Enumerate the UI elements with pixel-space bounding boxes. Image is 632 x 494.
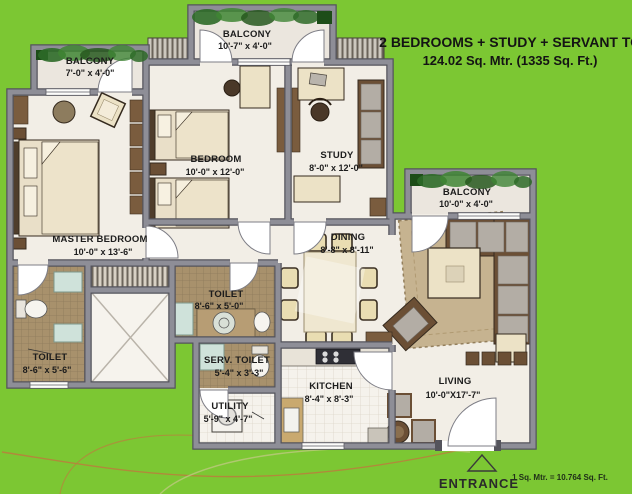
- master-bed: [10, 128, 99, 249]
- dims-utility: 5'-9" x 4'-7": [204, 414, 253, 424]
- study-laptop: [309, 73, 326, 86]
- bedroom-chair: [224, 80, 240, 96]
- dims-servant-toilet: 5'-4" x 3'-3": [215, 368, 264, 378]
- label-kitchen: KITCHEN: [309, 381, 353, 392]
- dims-study: 8'-0" x 12'-0": [309, 163, 363, 173]
- bedroom-desk: [240, 66, 270, 108]
- title-line1: 2 BEDROOMS + STUDY + SERVANT TOI.: [379, 34, 632, 50]
- entrance-label: ENTRANCE: [439, 476, 519, 491]
- label-toilet-mid: TOILET: [209, 289, 244, 300]
- study-cabinet: [370, 198, 386, 216]
- label-balcony-right: BALCONY: [443, 187, 492, 198]
- floor-plan-page: 2 BEDROOMS + STUDY + SERVANT TOI. 124.02…: [0, 0, 632, 494]
- master-round-table: [53, 101, 75, 123]
- dims-master-bedroom: 10'-0" x 13'-6": [74, 247, 133, 257]
- living-coffee-table: [428, 248, 480, 298]
- title-line2: 124.02 Sq. Mtr. (1335 Sq. Ft.): [423, 53, 598, 68]
- label-balcony-left: BALCONY: [66, 56, 115, 67]
- wardrobe-hatch: [90, 266, 170, 288]
- shaft: [91, 292, 170, 383]
- dims-toilet-left: 8'-6" x 5'-6": [23, 365, 72, 375]
- dims-balcony-left: 7'-0" x 4'-0": [66, 68, 115, 78]
- label-utility: UTILITY: [211, 401, 249, 412]
- label-master-bedroom: MASTER BEDROOM: [52, 234, 147, 245]
- dims-bedroom: 10'-0" x 12'-0": [186, 167, 245, 177]
- dims-balcony-right: 10'-0" x 4'-0": [439, 199, 493, 209]
- entrance-jamb-left: [435, 440, 442, 451]
- dims-living: 10'-0"X17'-7": [426, 390, 481, 400]
- dims-kitchen: 8'-4" x 8'-3": [305, 394, 354, 404]
- study-sofa: [358, 80, 384, 168]
- label-balcony-mid: BALCONY: [223, 29, 272, 40]
- scale-note: 1 Sq. Mtr. = 10.764 Sq. Ft.: [512, 473, 608, 482]
- floor-plan: 2 BEDROOMS + STUDY + SERVANT TOI. 124.02…: [0, 0, 632, 494]
- study-chair: [311, 103, 329, 121]
- dims-toilet-mid: 8'-6" x 5'-0": [195, 301, 244, 311]
- dims-dining: 8'-8" x 8'-11": [320, 245, 373, 255]
- study-table: [294, 176, 340, 202]
- label-study: STUDY: [320, 150, 354, 161]
- label-dining: DINING: [331, 232, 365, 243]
- dims-balcony-mid: 10'-7" x 4'-0": [218, 41, 272, 51]
- label-servant-toilet: SERV. TOILET: [204, 355, 270, 366]
- label-living: LIVING: [439, 376, 472, 387]
- label-bedroom: BEDROOM: [190, 154, 241, 165]
